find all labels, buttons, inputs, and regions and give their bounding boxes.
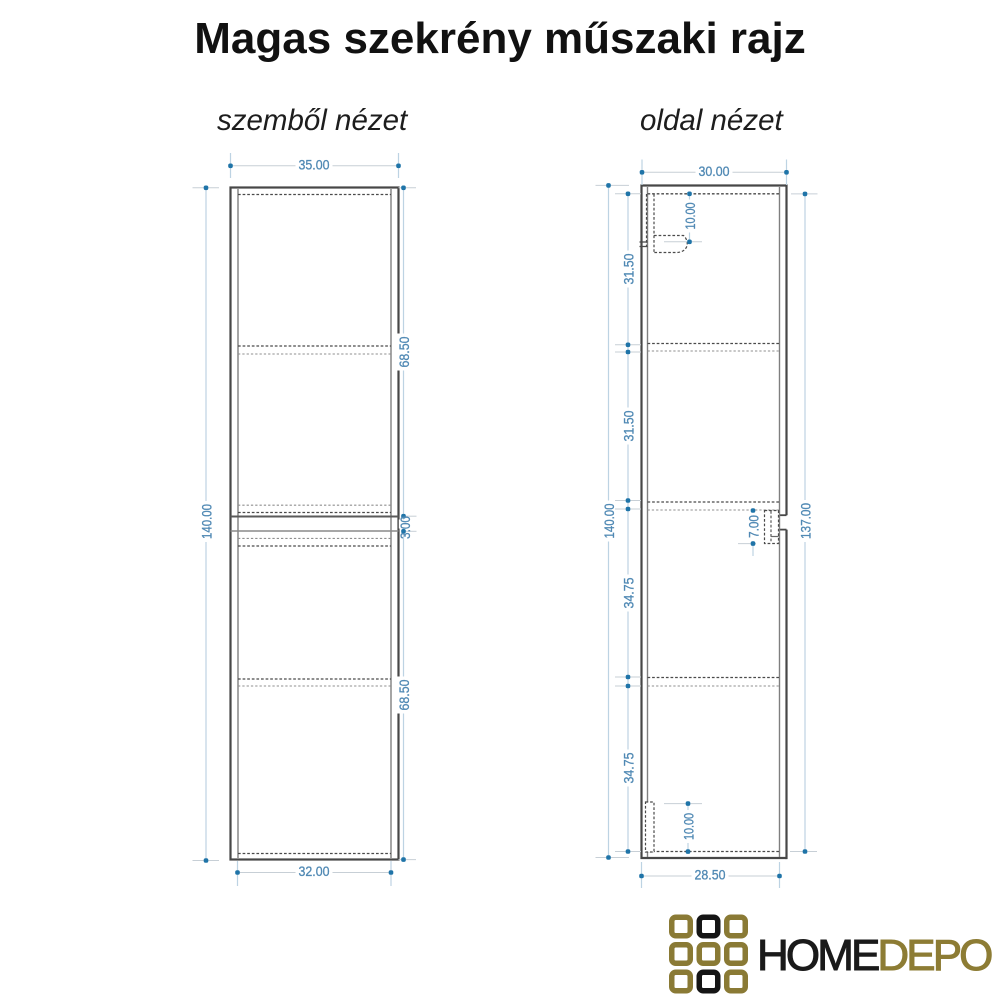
svg-text:31.50: 31.50 (620, 253, 636, 284)
svg-text:3.00: 3.00 (397, 516, 413, 539)
svg-text:68.50: 68.50 (396, 336, 412, 367)
svg-text:32.00: 32.00 (299, 863, 330, 879)
svg-text:68.50: 68.50 (396, 679, 412, 710)
svg-text:30.00: 30.00 (699, 163, 730, 179)
svg-text:140.00: 140.00 (198, 504, 214, 539)
svg-text:35.00: 35.00 (299, 157, 330, 173)
svg-text:28.50: 28.50 (695, 867, 726, 883)
svg-text:10.00: 10.00 (680, 813, 696, 840)
svg-text:7.00: 7.00 (745, 515, 761, 538)
svg-text:140.00: 140.00 (601, 503, 617, 538)
svg-text:31.50: 31.50 (620, 410, 636, 441)
svg-text:137.00: 137.00 (797, 503, 813, 539)
svg-text:10.00: 10.00 (682, 202, 698, 229)
svg-text:34.75: 34.75 (620, 577, 636, 608)
svg-text:34.75: 34.75 (620, 752, 636, 783)
